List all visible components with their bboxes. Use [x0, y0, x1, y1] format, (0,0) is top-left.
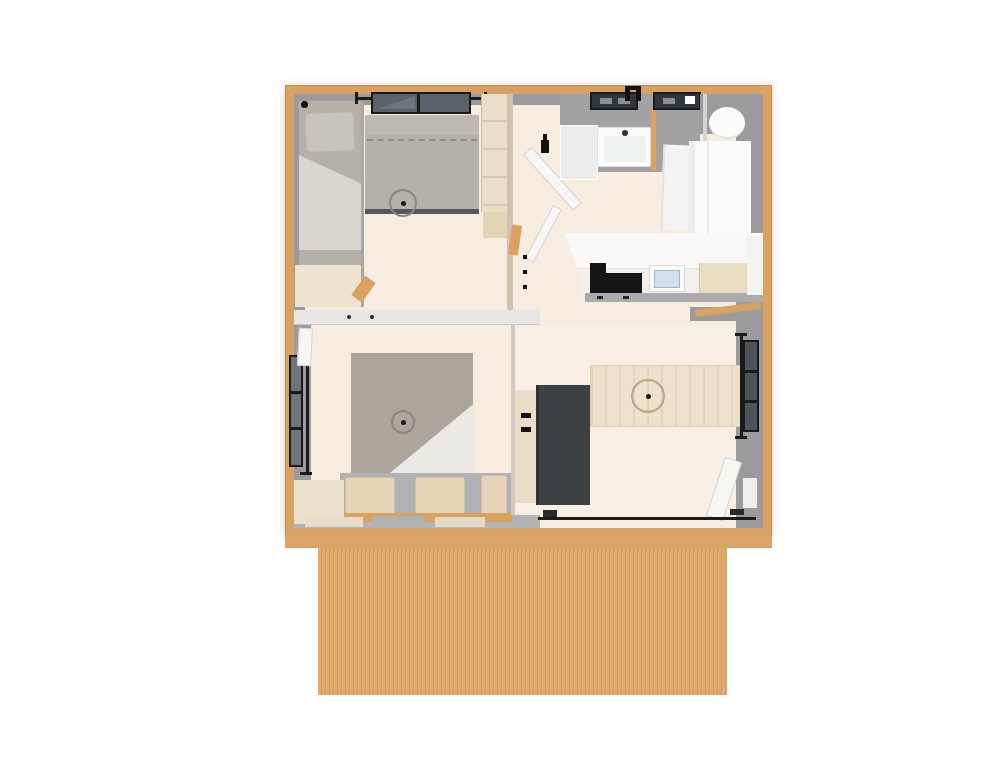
- bottom-gray-step: [373, 516, 425, 527]
- bottom-bench-1: [305, 517, 363, 527]
- living-window-bracket: [740, 333, 743, 439]
- light-switch-dot-2: [523, 270, 527, 274]
- washbasin: [597, 127, 651, 167]
- living-bracket-tick-top: [735, 333, 747, 336]
- roof-faucet-leg-2: [636, 86, 641, 101]
- ceiling-light-bedroom-1: [389, 189, 417, 217]
- cabinet-handle-dot-2: [623, 296, 629, 299]
- bottom-bench-2: [435, 517, 485, 527]
- dark-cabinet-wood-side: [515, 390, 536, 503]
- cabinet-handle-2: [521, 427, 531, 432]
- floor-plan-render: [0, 0, 1000, 773]
- refrigerator: [689, 141, 751, 233]
- kitchen-sink: [649, 265, 685, 292]
- wardrobe: [481, 94, 507, 212]
- living-right-window: [743, 340, 759, 432]
- hall-wall-lamp-icon: [541, 140, 549, 153]
- kitchen-wood-worktop: [699, 263, 747, 295]
- bedroom-2-bracket-tick-bottom: [300, 472, 312, 475]
- hall-wall-lamp-icon-top: [543, 134, 547, 140]
- toilet-divider: [703, 94, 707, 144]
- dark-cabinet: [536, 385, 590, 505]
- bathroom-window-2: [653, 92, 701, 110]
- living-bracket-tick-bottom: [735, 436, 747, 439]
- roof-faucet-leg-1: [625, 86, 630, 101]
- single-bed-pillow: [305, 112, 354, 152]
- kitchen-base-cabinet: [585, 293, 763, 302]
- headboard-pillow-3: [481, 475, 507, 515]
- sliding-door-handle-left: [543, 510, 557, 517]
- wooden-deck: [318, 547, 727, 695]
- divider-hinge-dot-2: [370, 315, 374, 319]
- counter-right-extension: [747, 235, 763, 295]
- headboard-pillow-2: [415, 477, 465, 515]
- cooktop-l-horizontal: [590, 273, 642, 293]
- shower-tray: [560, 125, 598, 180]
- building-floorplan: [285, 85, 772, 537]
- wall-lamp-icon: [301, 101, 308, 108]
- ceiling-light-bedroom-2: [391, 410, 415, 434]
- dresser-bench-bedroom-1: [295, 265, 361, 307]
- headboard-rail: [340, 513, 512, 522]
- tall-white-cabinet: [661, 145, 692, 231]
- double-bed-1-footboard: [365, 209, 479, 214]
- entry-door-jamb: [743, 478, 757, 508]
- double-bed-1-stitch: [367, 139, 477, 141]
- divider-wall-hall-upper: [507, 94, 513, 310]
- light-switch-dot-1: [523, 255, 527, 259]
- cabinet-handle-1: [521, 413, 531, 418]
- bedroom-1-window: [371, 92, 471, 114]
- light-switch-dot-3: [523, 285, 527, 289]
- pendant-light-dining: [631, 379, 665, 413]
- toilet: [709, 107, 745, 139]
- headboard-pillow-1: [345, 477, 395, 515]
- window-bracket-left-tick: [355, 92, 358, 104]
- bathroom-wood-post: [651, 110, 656, 170]
- divider-hinge-dot-1: [347, 315, 351, 319]
- sliding-door-handle-right: [730, 509, 744, 515]
- divider-wall-left-rooms: [294, 310, 540, 325]
- dining-table: [590, 365, 756, 427]
- sliding-glass-door: [538, 517, 756, 520]
- double-bed-1-pillowband: [365, 115, 479, 135]
- bathroom-window-1: [590, 92, 638, 110]
- bedroom-2-window: [289, 355, 303, 467]
- wardrobe-lower-cabinet: [483, 212, 507, 238]
- bedroom-2-white-door-panel: [297, 328, 313, 367]
- cabinet-handle-dot-1: [597, 296, 603, 299]
